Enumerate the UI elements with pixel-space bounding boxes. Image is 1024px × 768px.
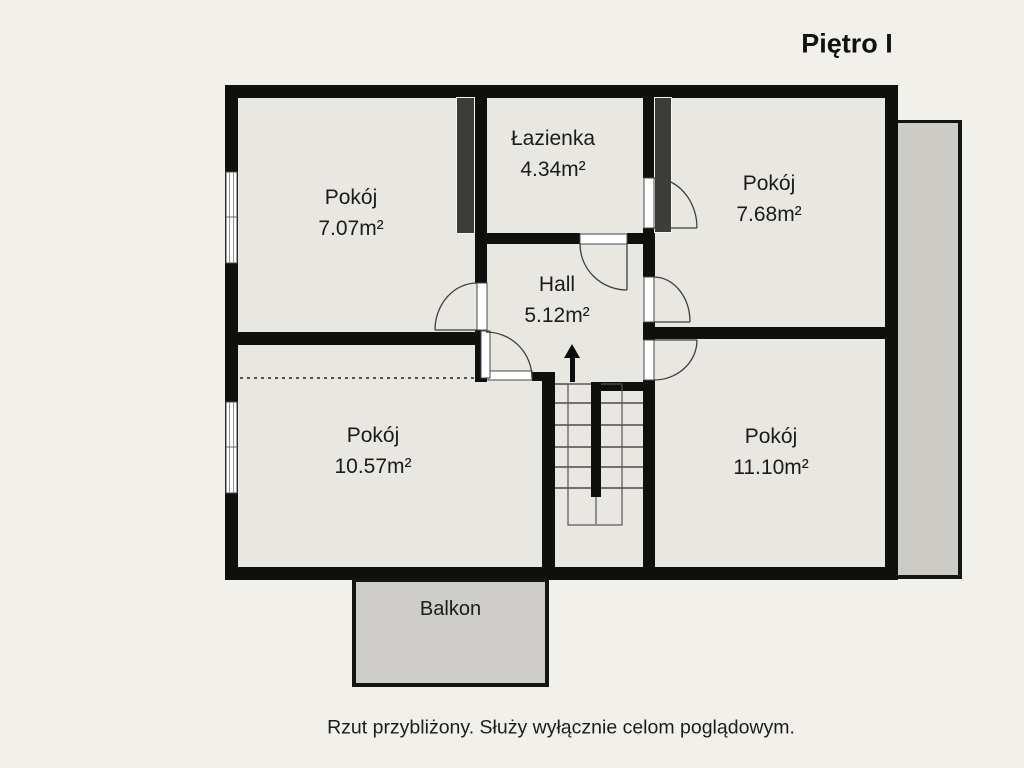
room-label-hall: Hall 5.12m² — [524, 269, 589, 331]
room-area: 7.07m² — [318, 213, 383, 244]
room-name: Pokój — [334, 420, 411, 451]
terrace-strip — [898, 120, 962, 579]
arrow-head — [564, 344, 580, 358]
room-label-pokoj-768: Pokój 7.68m² — [736, 168, 801, 230]
door-arc-hall-room768 — [654, 277, 690, 322]
door-arc-bath-room768 — [654, 178, 697, 228]
room-area: 4.34m² — [511, 154, 595, 185]
room-label-pokoj-1057: Pokój 10.57m² — [334, 420, 411, 482]
room-area: 10.57m² — [334, 451, 411, 482]
room-name: Pokój — [318, 182, 383, 213]
door-arc-hall-room1110 — [654, 340, 697, 380]
balcony-label: Balkon — [420, 598, 481, 620]
stair-spine-wall — [591, 382, 601, 497]
room-label-lazienka: Łazienka 4.34m² — [511, 123, 595, 185]
room-area: 11.10m² — [733, 452, 808, 483]
room-area: 5.12m² — [524, 300, 589, 331]
window — [226, 402, 237, 493]
room-name: Pokój — [736, 168, 801, 199]
stairs-up-arrow-icon — [564, 344, 580, 382]
balcony-area: Balkon — [352, 578, 549, 687]
room-label-pokoj-1110: Pokój 11.10m² — [733, 421, 808, 483]
room-name: Łazienka — [511, 123, 595, 154]
disclaimer-caption: Rzut przybliżony. Służy wyłącznie celom … — [327, 717, 795, 740]
room-area: 7.68m² — [736, 199, 801, 230]
arrow-shaft — [570, 358, 575, 382]
room-name: Pokój — [733, 421, 808, 452]
room-name: Hall — [524, 269, 589, 300]
floor-plan-canvas: Piętro I — [0, 0, 1024, 768]
door-arc-hall-room707 — [435, 283, 477, 330]
room-label-pokoj-707: Pokój 7.07m² — [318, 182, 383, 244]
window — [226, 172, 237, 263]
